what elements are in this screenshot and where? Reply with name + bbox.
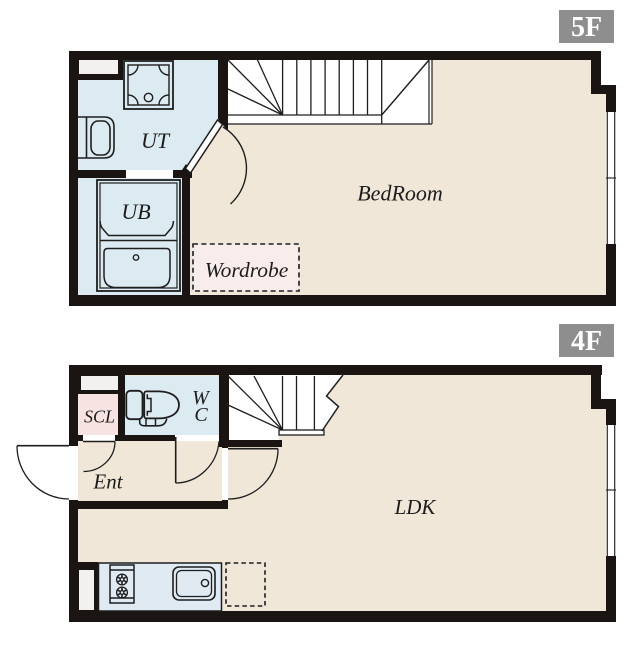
svg-text:Ent: Ent [92,470,123,494]
svg-text:Wordrobe: Wordrobe [205,258,289,282]
svg-text:UB: UB [121,199,150,224]
svg-text:UT: UT [141,128,171,153]
svg-text:SCL: SCL [84,407,115,427]
svg-text:LDK: LDK [394,495,437,519]
svg-text:5F: 5F [571,12,602,43]
svg-text:C: C [194,404,208,426]
svg-text:BedRoom: BedRoom [357,181,443,206]
svg-text:4F: 4F [571,326,602,357]
